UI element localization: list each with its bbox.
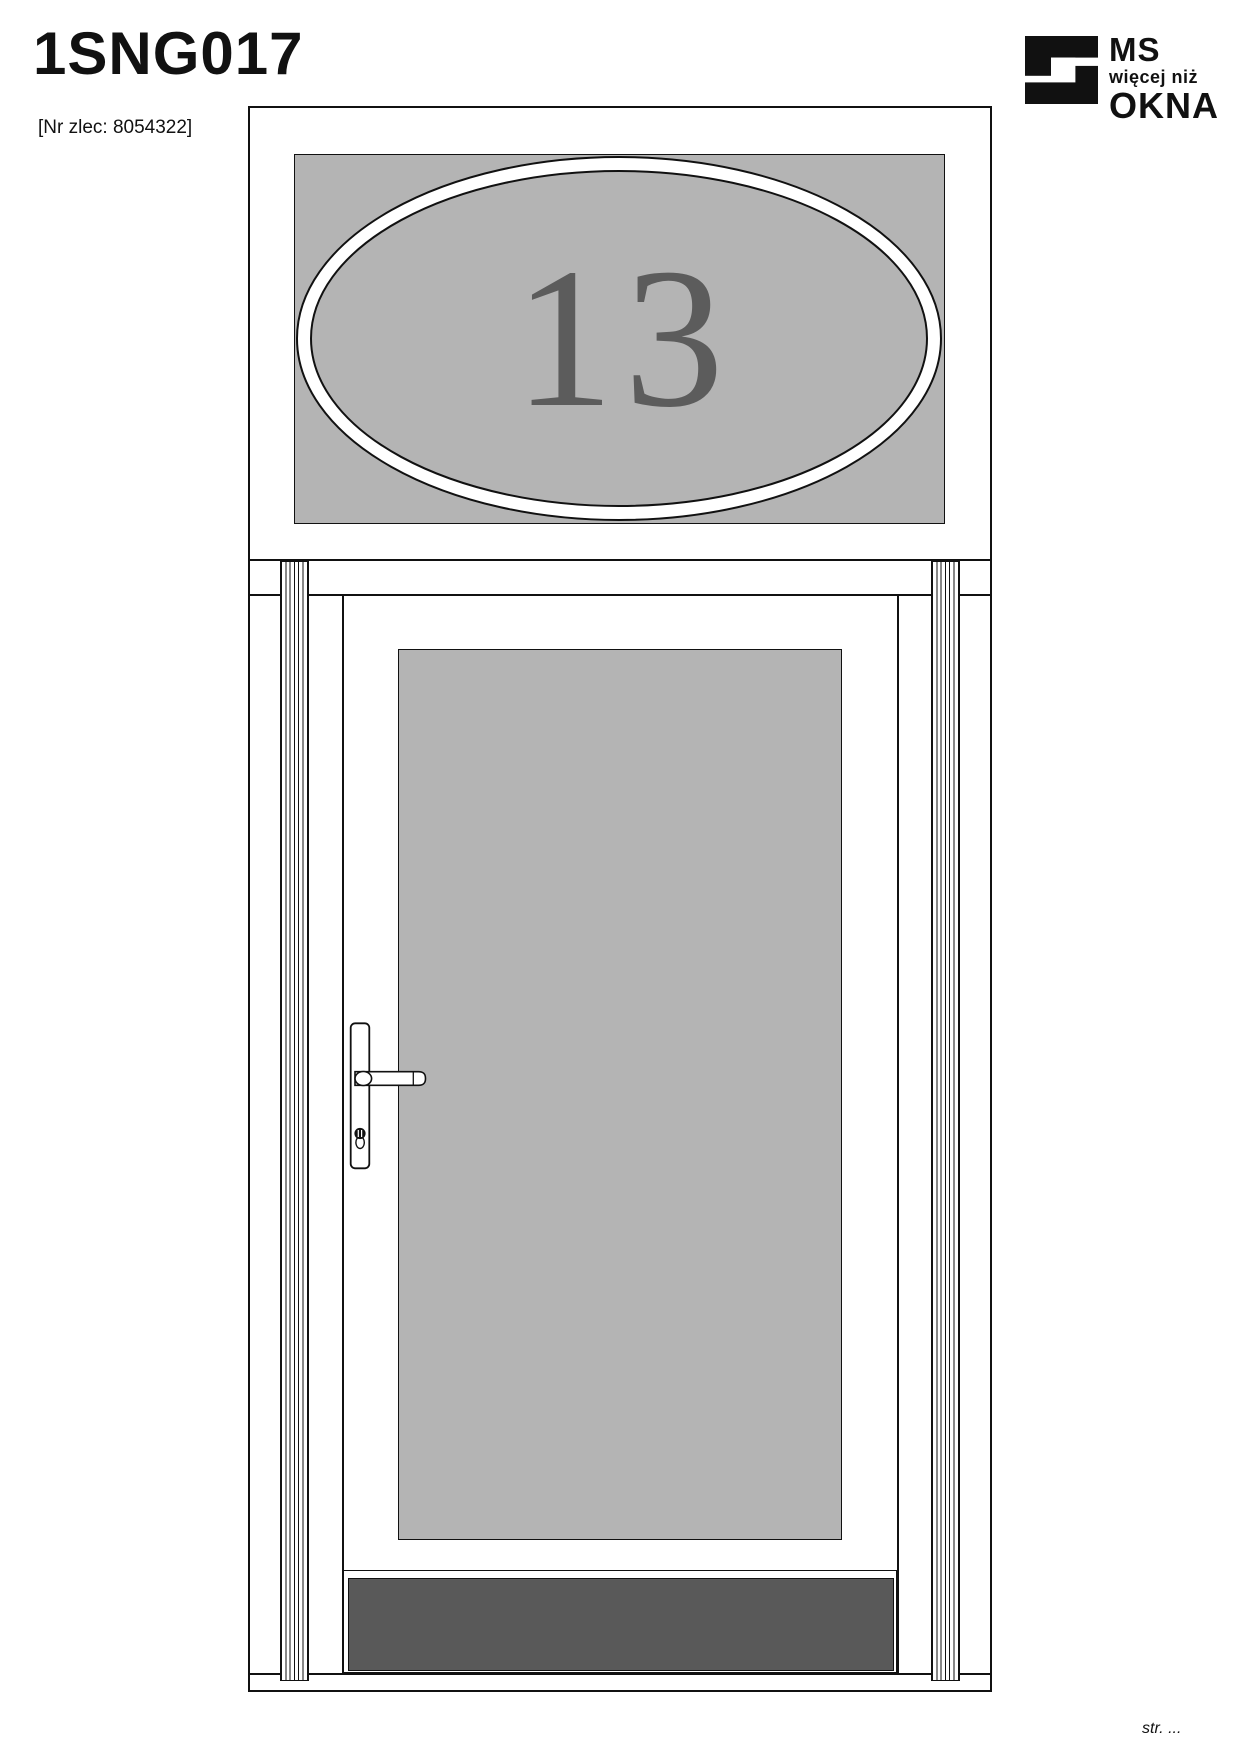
- house-number: 13: [295, 155, 943, 522]
- door-glass-panel: [398, 649, 842, 1540]
- logo-line-okna: OKNA: [1109, 88, 1219, 124]
- company-logo: MS więcej niż OKNA: [1025, 33, 1219, 124]
- door-drawing: 13: [248, 106, 992, 1692]
- door-handle: [348, 1021, 438, 1191]
- page-title: 1SNG017: [33, 24, 304, 84]
- transom-glass: 13: [294, 154, 945, 524]
- frame-extension-profile-left: [280, 561, 309, 1681]
- logo-line-tagline: więcej niż: [1109, 68, 1219, 86]
- lock-cylinder-face: [354, 1128, 365, 1139]
- order-number: [Nr zlec: 8054322]: [38, 117, 192, 140]
- kick-panel-fill: [348, 1578, 894, 1671]
- handle-pivot-boss: [355, 1072, 372, 1086]
- page-number-label: str. ...: [1142, 1720, 1181, 1738]
- order-document-page: 1SNG017 [Nr zlec: 8054322] MS więcej niż…: [0, 0, 1240, 1755]
- kick-panel: [343, 1570, 897, 1673]
- logo-line-ms: MS: [1109, 33, 1219, 66]
- frame-extension-profile-right: [931, 561, 960, 1681]
- ms-okna-logo-icon: [1025, 36, 1098, 104]
- transom-door-boundary-line: [250, 559, 990, 561]
- logo-text: MS więcej niż OKNA: [1109, 33, 1219, 124]
